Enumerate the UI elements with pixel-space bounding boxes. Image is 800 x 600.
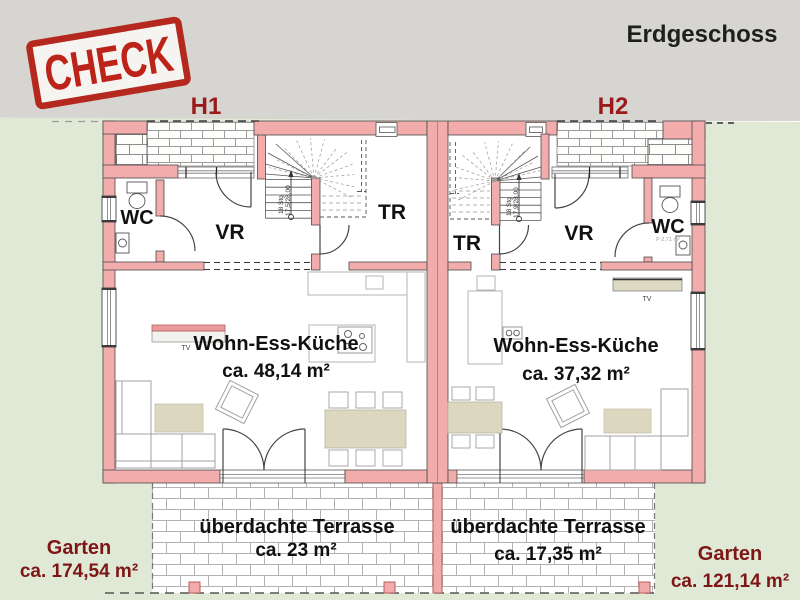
svg-text:TR: TR bbox=[453, 232, 481, 255]
svg-text:ca. 121,14 m²: ca. 121,14 m² bbox=[671, 571, 789, 592]
svg-text:TV: TV bbox=[643, 296, 652, 303]
svg-text:VR: VR bbox=[215, 221, 244, 244]
svg-text:WC: WC bbox=[651, 216, 684, 238]
svg-text:ca. 174,54 m²: ca. 174,54 m² bbox=[20, 561, 138, 582]
svg-text:ca. 23 m²: ca. 23 m² bbox=[255, 540, 336, 561]
svg-text:Garten: Garten bbox=[698, 543, 762, 565]
svg-text:17,5/28,00: 17,5/28,00 bbox=[285, 185, 292, 216]
svg-text:18 Stg: 18 Stg bbox=[278, 195, 285, 214]
svg-text:ca. 17,35 m²: ca. 17,35 m² bbox=[494, 544, 602, 565]
svg-text:überdachte Terrasse: überdachte Terrasse bbox=[450, 516, 645, 538]
svg-text:17,9/28,00: 17,9/28,00 bbox=[513, 187, 520, 218]
svg-text:Garten: Garten bbox=[47, 537, 111, 559]
svg-text:überdachte Terrasse: überdachte Terrasse bbox=[199, 516, 394, 538]
svg-text:H1: H1 bbox=[191, 93, 222, 120]
svg-text:Erdgeschoss: Erdgeschoss bbox=[627, 21, 778, 48]
svg-text:Wohn-Ess-Küche: Wohn-Ess-Küche bbox=[493, 335, 658, 357]
svg-text:ca. 48,14 m²: ca. 48,14 m² bbox=[222, 361, 330, 382]
svg-text:VR: VR bbox=[564, 222, 593, 245]
svg-text:TR: TR bbox=[378, 201, 406, 224]
svg-text:TV: TV bbox=[182, 345, 191, 352]
svg-text:Wohn-Ess-Küche: Wohn-Ess-Küche bbox=[193, 333, 358, 355]
svg-text:P 2,71 m²: P 2,71 m² bbox=[656, 237, 680, 243]
svg-text:H2: H2 bbox=[598, 93, 629, 120]
svg-text:18 Stg: 18 Stg bbox=[506, 197, 513, 216]
svg-text:WC: WC bbox=[120, 207, 153, 229]
svg-text:ca. 37,32 m²: ca. 37,32 m² bbox=[522, 364, 630, 385]
